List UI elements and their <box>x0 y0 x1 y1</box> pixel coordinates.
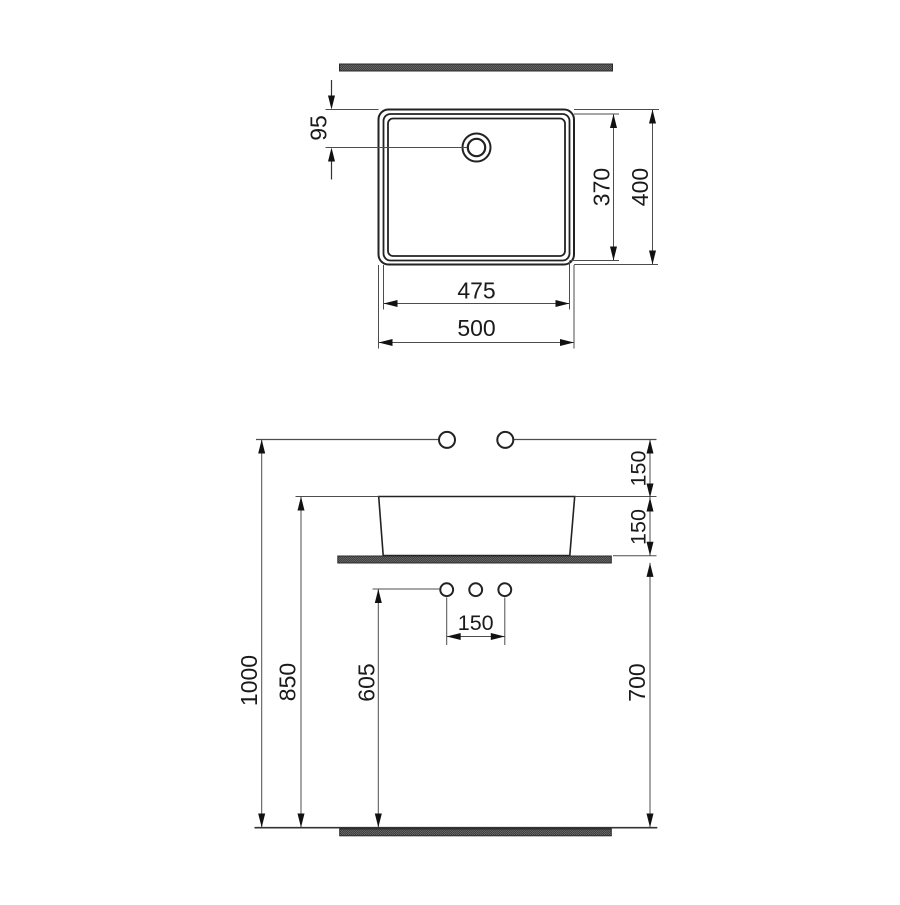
svg-text:475: 475 <box>457 278 495 304</box>
svg-text:150: 150 <box>627 509 651 545</box>
svg-text:95: 95 <box>306 115 332 141</box>
svg-text:400: 400 <box>627 168 653 206</box>
svg-text:150: 150 <box>627 451 651 487</box>
svg-text:850: 850 <box>275 663 301 701</box>
svg-text:605: 605 <box>354 663 380 701</box>
svg-text:1000: 1000 <box>236 655 262 706</box>
svg-text:500: 500 <box>457 315 495 341</box>
svg-text:370: 370 <box>589 168 615 206</box>
svg-text:150: 150 <box>458 611 494 635</box>
svg-text:700: 700 <box>624 663 650 701</box>
